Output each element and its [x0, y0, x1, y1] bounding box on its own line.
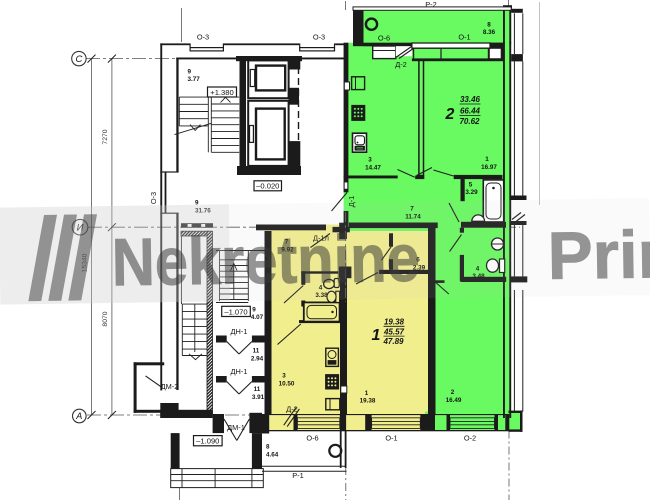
svg-text:ДМ-2: ДМ-2 [161, 382, 179, 391]
svg-text:О-6: О-6 [378, 34, 390, 43]
svg-text:2: 2 [445, 106, 455, 123]
svg-text:Р-2: Р-2 [425, 0, 437, 9]
svg-text:А: А [75, 411, 82, 421]
svg-text:70.62: 70.62 [459, 117, 480, 126]
svg-text:+1.380: +1.380 [210, 88, 233, 97]
svg-text:10.50: 10.50 [279, 381, 295, 388]
svg-text:19.38: 19.38 [360, 398, 376, 405]
svg-text:3.91: 3.91 [252, 394, 265, 401]
svg-text:1: 1 [365, 390, 369, 397]
svg-text:19.38: 19.38 [384, 318, 405, 327]
svg-text:4.07: 4.07 [251, 314, 264, 321]
svg-text:9: 9 [188, 69, 192, 76]
svg-text:2.94: 2.94 [251, 356, 264, 363]
svg-text:5: 5 [469, 182, 473, 189]
svg-text:О-3: О-3 [149, 192, 158, 204]
svg-text:3: 3 [368, 157, 372, 164]
svg-text:–0.020: –0.020 [256, 182, 279, 191]
svg-text:С: С [75, 54, 82, 65]
svg-text:–1.090: –1.090 [196, 437, 219, 446]
svg-text:ДМ-1: ДМ-1 [227, 423, 245, 432]
svg-text:66.44: 66.44 [460, 107, 481, 116]
svg-text:ДН-1: ДН-1 [231, 367, 248, 376]
svg-text:Д-2: Д-2 [395, 60, 407, 69]
svg-text:Nekretnine: Nekretnine [111, 221, 420, 301]
svg-text:Prim: Prim [547, 217, 650, 294]
svg-text:9: 9 [252, 307, 256, 314]
svg-text:1: 1 [372, 327, 381, 344]
svg-text:8.36: 8.36 [483, 29, 496, 36]
svg-text:ДН-1: ДН-1 [231, 327, 248, 336]
svg-text:–1.070: –1.070 [224, 307, 247, 316]
svg-text:7270: 7270 [102, 129, 109, 144]
svg-text:3.77: 3.77 [188, 76, 201, 83]
svg-text:8: 8 [266, 444, 270, 451]
svg-text:8: 8 [487, 22, 491, 29]
svg-text:16.49: 16.49 [446, 397, 462, 404]
svg-text:Д-2: Д-2 [286, 405, 298, 414]
svg-text:4.64: 4.64 [266, 452, 279, 459]
svg-text:О-6: О-6 [306, 434, 318, 443]
svg-text:14.47: 14.47 [365, 165, 381, 172]
svg-text:11: 11 [253, 348, 260, 355]
svg-text:16.97: 16.97 [481, 164, 497, 171]
svg-text:2: 2 [451, 389, 455, 396]
svg-text:О-3: О-3 [313, 33, 325, 42]
svg-text:1: 1 [485, 156, 489, 163]
svg-text:45.57: 45.57 [383, 327, 405, 336]
svg-text:О-1: О-1 [385, 434, 397, 443]
svg-text:3: 3 [282, 373, 286, 380]
svg-text:11: 11 [254, 386, 261, 393]
svg-text:О-2: О-2 [464, 434, 476, 443]
svg-text:47.89: 47.89 [382, 337, 404, 346]
svg-text:Р-1: Р-1 [292, 471, 304, 480]
svg-text:О-1: О-1 [458, 33, 470, 42]
svg-text:33.46: 33.46 [460, 95, 481, 104]
svg-text:О-3: О-3 [197, 33, 209, 42]
svg-text:8070: 8070 [102, 311, 109, 326]
svg-text:3.29: 3.29 [465, 189, 478, 196]
